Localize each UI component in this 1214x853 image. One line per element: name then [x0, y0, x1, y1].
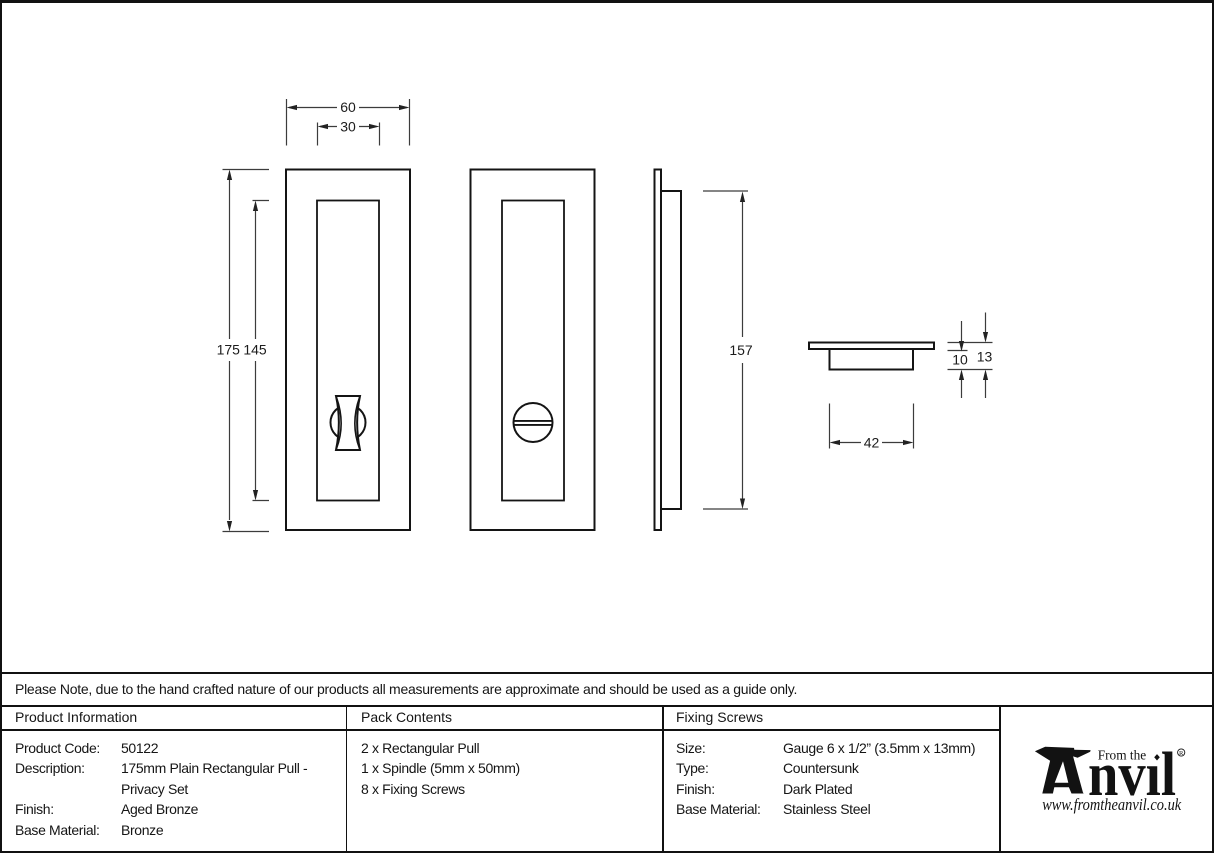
svg-text:R: R	[1179, 750, 1184, 757]
svg-text:www.fromtheanvil.co.uk: www.fromtheanvil.co.uk	[1042, 795, 1181, 814]
svg-text:30: 30	[340, 119, 356, 135]
svg-text:175: 175	[217, 342, 241, 358]
svg-text:42: 42	[864, 435, 880, 451]
svg-text:60: 60	[340, 99, 356, 115]
svg-text:10: 10	[952, 352, 968, 368]
svg-text:157: 157	[729, 342, 753, 358]
svg-text:145: 145	[243, 342, 267, 358]
svg-text:13: 13	[977, 349, 993, 365]
